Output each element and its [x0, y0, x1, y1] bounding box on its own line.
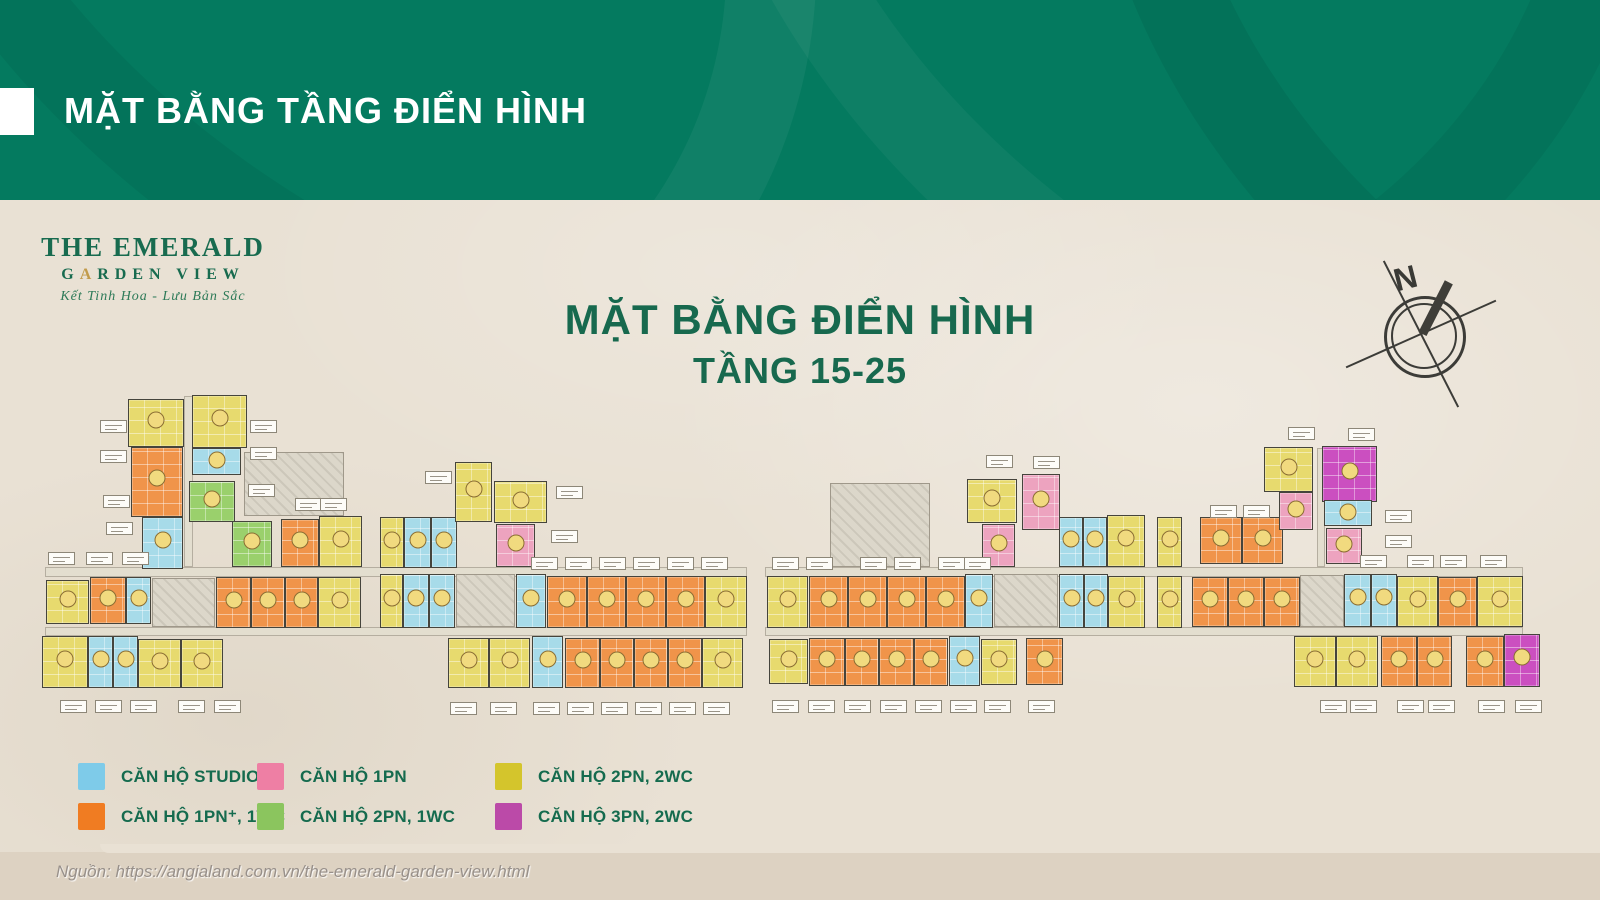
apartment-unit-studio	[429, 574, 455, 628]
unit-number-badge	[574, 652, 591, 669]
legend-label: CĂN HỘ 2PN, 2WC	[538, 767, 693, 787]
area-label-box	[772, 557, 799, 570]
unit-number-badge	[1409, 590, 1426, 607]
area-label-box	[86, 552, 113, 565]
unit-number-badge	[293, 591, 310, 608]
area-label-box	[915, 700, 942, 713]
apartment-unit-studio	[88, 636, 113, 688]
apartment-unit-1pn	[1326, 528, 1362, 564]
bottom-strip: Nguồn: https://angialand.com.vn/the-emer…	[0, 852, 1600, 900]
unit-number-badge	[117, 651, 134, 668]
unit-number-badge	[1391, 650, 1408, 667]
legend-item-1pn-plus: CĂN HỘ 1PN⁺, 1WC	[78, 803, 285, 830]
unit-number-badge	[1288, 500, 1305, 517]
unit-number-badge	[260, 591, 277, 608]
apartment-unit-2pn-2wc	[702, 638, 743, 688]
area-label-box	[880, 700, 907, 713]
area-label-box	[178, 700, 205, 713]
apartment-unit-2pn-2wc	[138, 639, 181, 688]
apartment-unit-2pn-1wc	[232, 521, 272, 567]
apartment-unit-2pn-2wc	[380, 517, 404, 568]
apartment-unit-2pn-2wc	[1336, 636, 1378, 687]
apartment-unit-3pn-2wc	[1504, 634, 1540, 687]
apartment-unit-1pn	[1279, 492, 1313, 530]
unit-number-badge	[638, 591, 655, 608]
unit-number-badge	[57, 651, 74, 668]
area-label-box	[295, 498, 322, 511]
apartment-unit-1pn-plus-1wc	[1228, 577, 1264, 627]
unit-number-badge	[244, 533, 261, 550]
apartment-unit-2pn-2wc	[192, 395, 247, 448]
area-label-box	[567, 702, 594, 715]
area-label-box	[703, 702, 730, 715]
apartment-unit-2pn-2wc	[1397, 576, 1438, 627]
unit-number-badge	[292, 532, 309, 549]
unit-number-badge	[1118, 591, 1135, 608]
apartment-unit-2pn-2wc	[46, 580, 89, 624]
core-block	[152, 578, 215, 627]
unit-number-badge	[1426, 650, 1443, 667]
core-block	[994, 574, 1058, 627]
legend-label: CĂN HỘ 3PN, 2WC	[538, 807, 693, 827]
unit-number-badge	[643, 652, 660, 669]
legend-item-studio: CĂN HỘ STUDIO	[78, 763, 260, 790]
core-block	[1300, 575, 1344, 627]
legend-item-2pn-1wc: CĂN HỘ 2PN, 1WC	[257, 803, 455, 830]
area-label-box	[48, 552, 75, 565]
apartment-unit-1pn-plus-1wc	[216, 577, 251, 628]
legend-swatch-studio	[78, 763, 105, 790]
legend-item-1pn: CĂN HỘ 1PN	[257, 763, 407, 790]
area-label-box	[1288, 427, 1315, 440]
area-label-box	[1385, 535, 1412, 548]
unit-number-badge	[1063, 531, 1080, 548]
unit-number-badge	[151, 652, 168, 669]
apartment-unit-2pn-2wc	[705, 576, 747, 628]
unit-number-badge	[408, 589, 425, 606]
area-label-box	[450, 702, 477, 715]
area-label-box	[95, 700, 122, 713]
apartment-unit-studio	[1344, 574, 1371, 627]
unit-number-badge	[1349, 650, 1366, 667]
unit-number-badge	[383, 589, 400, 606]
apartment-unit-2pn-2wc	[42, 636, 88, 688]
area-label-box	[551, 530, 578, 543]
source-url-text: Nguồn: https://angialand.com.vn/the-emer…	[56, 862, 529, 882]
area-label-box	[772, 700, 799, 713]
unit-number-badge	[990, 535, 1007, 552]
unit-number-badge	[149, 469, 166, 486]
apartment-unit-studio	[1371, 574, 1397, 627]
area-label-box	[60, 700, 87, 713]
apartment-unit-2pn-2wc	[967, 479, 1017, 523]
unit-number-badge	[859, 591, 876, 608]
apartment-unit-1pn-plus-1wc	[1200, 517, 1242, 564]
unit-number-badge	[559, 591, 576, 608]
apartment-unit-1pn-plus-1wc	[1466, 636, 1504, 687]
apartment-unit-1pn-plus-1wc	[879, 638, 914, 686]
apartment-unit-studio	[1084, 574, 1108, 628]
apartment-unit-studio	[126, 577, 151, 624]
core-block	[830, 483, 930, 567]
apartment-unit-1pn-plus-1wc	[1192, 577, 1228, 627]
area-label-box	[635, 702, 662, 715]
unit-number-badge	[1349, 589, 1366, 606]
area-label-box	[860, 557, 887, 570]
unit-number-badge	[1280, 458, 1297, 475]
apartment-unit-2pn-2wc	[181, 639, 223, 688]
unit-number-badge	[384, 531, 401, 548]
apartment-unit-1pn-plus-1wc	[809, 638, 845, 686]
apartment-unit-1pn-plus-1wc	[926, 576, 965, 628]
unit-number-badge	[1063, 589, 1080, 606]
area-label-box	[601, 702, 628, 715]
area-label-box	[1407, 555, 1434, 568]
unit-number-badge	[148, 412, 165, 429]
unit-number-badge	[1514, 649, 1531, 666]
unit-number-badge	[460, 652, 477, 669]
unit-number-badge	[598, 591, 615, 608]
legend-item-3pn-2wc: CĂN HỘ 3PN, 2WC	[495, 803, 693, 830]
legend-swatch-2pn-2wc	[495, 763, 522, 790]
unit-number-badge	[898, 591, 915, 608]
apartment-unit-2pn-2wc	[1264, 447, 1313, 492]
unit-number-badge	[225, 591, 242, 608]
apartment-unit-2pn-2wc	[1477, 576, 1523, 627]
area-label-box	[964, 557, 991, 570]
apartment-unit-studio	[949, 636, 980, 686]
unit-number-badge	[1340, 503, 1357, 520]
area-label-box	[214, 700, 241, 713]
area-label-box	[1028, 700, 1055, 713]
apartment-unit-1pn-plus-1wc	[285, 577, 318, 628]
apartment-unit-1pn	[1022, 474, 1060, 530]
area-label-box	[320, 498, 347, 511]
apartment-unit-1pn-plus-1wc	[626, 576, 666, 628]
area-label-box	[894, 557, 921, 570]
area-label-box	[533, 702, 560, 715]
area-label-box	[425, 471, 452, 484]
area-label-box	[100, 450, 127, 463]
brochure-page: MẶT BẰNG TẦNG ĐIỂN HÌNH THE EMERALD GARD…	[0, 0, 1600, 900]
area-label-box	[1350, 700, 1377, 713]
unit-number-badge	[465, 480, 482, 497]
unit-number-badge	[512, 491, 529, 508]
apartment-unit-1pn-plus-1wc	[1438, 577, 1477, 627]
apartment-unit-1pn-plus-1wc	[666, 576, 705, 628]
unit-number-badge	[1036, 650, 1053, 667]
apartment-unit-1pn-plus-1wc	[1417, 636, 1452, 687]
apartment-unit-2pn-2wc	[769, 639, 808, 684]
unit-number-badge	[1449, 591, 1466, 608]
apartment-unit-2pn-2wc	[319, 516, 362, 567]
unit-number-badge	[780, 650, 797, 667]
area-label-box	[1515, 700, 1542, 713]
unit-number-badge	[854, 651, 871, 668]
unit-number-badge	[1161, 591, 1178, 608]
area-label-box	[1210, 505, 1237, 518]
core-block	[456, 574, 515, 627]
area-label-box	[806, 557, 833, 570]
unit-number-badge	[434, 589, 451, 606]
apartment-unit-2pn-2wc	[128, 399, 184, 447]
area-label-box	[100, 420, 127, 433]
unit-number-badge	[677, 652, 694, 669]
apartment-unit-1pn-plus-1wc	[845, 638, 879, 686]
legend-label: CĂN HỘ STUDIO	[121, 767, 260, 787]
apartment-unit-2pn-2wc	[318, 577, 361, 628]
apartment-unit-2pn-2wc	[1157, 517, 1182, 567]
area-label-box	[633, 557, 660, 570]
apartment-unit-studio	[532, 636, 563, 688]
unit-number-badge	[1238, 591, 1255, 608]
unit-number-badge	[677, 591, 694, 608]
area-label-box	[490, 702, 517, 715]
apartment-unit-2pn-2wc	[489, 638, 530, 688]
legend-swatch-1pn-plus	[78, 803, 105, 830]
area-label-box	[1385, 510, 1412, 523]
unit-number-badge	[1274, 591, 1291, 608]
apartment-unit-2pn-1wc	[189, 481, 235, 522]
unit-number-badge	[718, 591, 735, 608]
unit-number-badge	[1376, 589, 1393, 606]
apartment-unit-1pn-plus-1wc	[587, 576, 626, 628]
area-label-box	[938, 557, 965, 570]
apartment-unit-studio	[1083, 517, 1107, 567]
apartment-unit-studio	[516, 574, 546, 628]
area-label-box	[1397, 700, 1424, 713]
apartment-unit-studio	[404, 517, 431, 568]
area-label-box	[986, 455, 1013, 468]
apartment-unit-studio	[431, 517, 457, 568]
apartment-unit-2pn-2wc	[981, 639, 1017, 685]
unit-number-badge	[331, 591, 348, 608]
legend-label: CĂN HỘ 1PN	[300, 767, 407, 787]
apartment-unit-1pn-plus-1wc	[251, 577, 285, 628]
area-label-box	[130, 700, 157, 713]
corridor	[765, 627, 1523, 636]
unit-number-badge	[204, 491, 221, 508]
apartment-unit-2pn-2wc	[1294, 636, 1336, 687]
apartment-unit-studio	[403, 574, 429, 628]
apartment-unit-1pn-plus-1wc	[1381, 636, 1417, 687]
apartment-unit-studio	[1324, 500, 1372, 526]
area-label-box	[103, 495, 130, 508]
area-label-box	[106, 522, 133, 535]
apartment-unit-1pn-plus-1wc	[1026, 638, 1063, 685]
unit-number-badge	[1307, 650, 1324, 667]
apartment-unit-1pn	[496, 524, 535, 567]
unit-number-badge	[59, 591, 76, 608]
area-label-box	[1243, 505, 1270, 518]
unit-number-badge	[820, 591, 837, 608]
corridor	[45, 627, 747, 636]
unit-number-badge	[507, 535, 524, 552]
area-label-box	[250, 420, 277, 433]
unit-number-badge	[100, 589, 117, 606]
unit-number-badge	[888, 651, 905, 668]
apartment-unit-studio	[192, 448, 241, 475]
area-label-box	[669, 702, 696, 715]
apartment-unit-1pn-plus-1wc	[887, 576, 926, 628]
area-label-box	[599, 557, 626, 570]
area-label-box	[565, 557, 592, 570]
apartment-unit-2pn-2wc	[455, 462, 492, 522]
area-label-box	[1348, 428, 1375, 441]
unit-number-badge	[1202, 591, 1219, 608]
unit-number-badge	[1161, 531, 1178, 548]
area-label-box	[950, 700, 977, 713]
apartment-unit-2pn-2wc	[1107, 515, 1145, 567]
unit-number-badge	[1477, 650, 1494, 667]
unit-number-badge	[1087, 531, 1104, 548]
apartment-unit-studio	[113, 636, 138, 688]
unit-number-badge	[208, 452, 225, 469]
apartment-unit-1pn-plus-1wc	[809, 576, 848, 628]
unit-number-badge	[937, 591, 954, 608]
unit-number-badge	[1088, 589, 1105, 606]
unit-number-badge	[1254, 529, 1271, 546]
apartment-unit-1pn-plus-1wc	[848, 576, 887, 628]
unit-number-badge	[819, 651, 836, 668]
unit-number-badge	[130, 589, 147, 606]
apartment-unit-1pn-plus-1wc	[281, 519, 319, 567]
apartment-unit-1pn-plus-1wc	[565, 638, 600, 688]
unit-number-badge	[971, 589, 988, 606]
area-label-box	[248, 484, 275, 497]
apartment-unit-1pn-plus-1wc	[1242, 517, 1283, 564]
unit-number-badge	[539, 651, 556, 668]
unit-number-badge	[1033, 490, 1050, 507]
unit-number-badge	[409, 531, 426, 548]
apartment-unit-1pn-plus-1wc	[600, 638, 634, 688]
unit-number-badge	[92, 651, 109, 668]
unit-number-badge	[154, 532, 171, 549]
apartment-unit-1pn-plus-1wc	[634, 638, 668, 688]
apartment-unit-2pn-2wc	[767, 576, 808, 628]
apartment-unit-studio	[1059, 574, 1084, 628]
apartment-unit-1pn-plus-1wc	[1264, 577, 1300, 627]
unit-number-badge	[779, 591, 796, 608]
unit-number-badge	[1341, 462, 1358, 479]
area-label-box	[1033, 456, 1060, 469]
unit-number-badge	[436, 531, 453, 548]
area-label-box	[556, 486, 583, 499]
apartment-unit-1pn-plus-1wc	[547, 576, 587, 628]
unit-number-badge	[523, 589, 540, 606]
unit-number-badge	[984, 490, 1001, 507]
area-label-box	[1320, 700, 1347, 713]
apartment-unit-3pn-2wc	[1322, 446, 1377, 502]
area-label-box	[250, 447, 277, 460]
apartment-unit-1pn-plus-1wc	[90, 577, 126, 624]
unit-number-badge	[1336, 535, 1353, 552]
legend-swatch-3pn-2wc	[495, 803, 522, 830]
unit-number-badge	[1213, 529, 1230, 546]
area-label-box	[701, 557, 728, 570]
unit-number-badge	[1118, 530, 1135, 547]
unit-number-badge	[609, 652, 626, 669]
legend-swatch-2pn-1wc	[257, 803, 284, 830]
area-label-box	[1360, 555, 1387, 568]
legend-swatch-1pn	[257, 763, 284, 790]
apartment-unit-2pn-2wc	[448, 638, 489, 688]
unit-number-badge	[956, 650, 973, 667]
area-label-box	[1440, 555, 1467, 568]
legend-label: CĂN HỘ 2PN, 1WC	[300, 807, 455, 827]
unit-number-badge	[991, 651, 1008, 668]
apartment-unit-2pn-2wc	[494, 481, 547, 523]
area-label-box	[1480, 555, 1507, 568]
area-label-box	[1428, 700, 1455, 713]
area-label-box	[122, 552, 149, 565]
apartment-unit-2pn-2wc	[1157, 576, 1182, 628]
apartment-unit-1pn-plus-1wc	[668, 638, 702, 688]
area-label-box	[844, 700, 871, 713]
unit-number-badge	[714, 652, 731, 669]
apartment-unit-2pn-2wc	[380, 574, 403, 628]
area-label-box	[984, 700, 1011, 713]
unit-number-badge	[501, 652, 518, 669]
unit-number-badge	[1492, 590, 1509, 607]
unit-number-badge	[332, 530, 349, 547]
apartment-unit-studio	[965, 574, 993, 628]
area-label-box	[1478, 700, 1505, 713]
legend-item-2pn-2wc: CĂN HỘ 2PN, 2WC	[495, 763, 693, 790]
area-label-box	[808, 700, 835, 713]
unit-number-badge	[194, 652, 211, 669]
apartment-unit-1pn-plus-1wc	[131, 447, 183, 517]
apartment-unit-studio	[1059, 517, 1083, 567]
area-label-box	[667, 557, 694, 570]
area-label-box	[531, 557, 558, 570]
unit-number-badge	[211, 410, 228, 427]
apartment-unit-2pn-2wc	[1108, 576, 1145, 628]
apartment-unit-1pn-plus-1wc	[914, 638, 948, 686]
unit-number-badge	[923, 651, 940, 668]
panel-rounded-corner	[100, 844, 1600, 853]
